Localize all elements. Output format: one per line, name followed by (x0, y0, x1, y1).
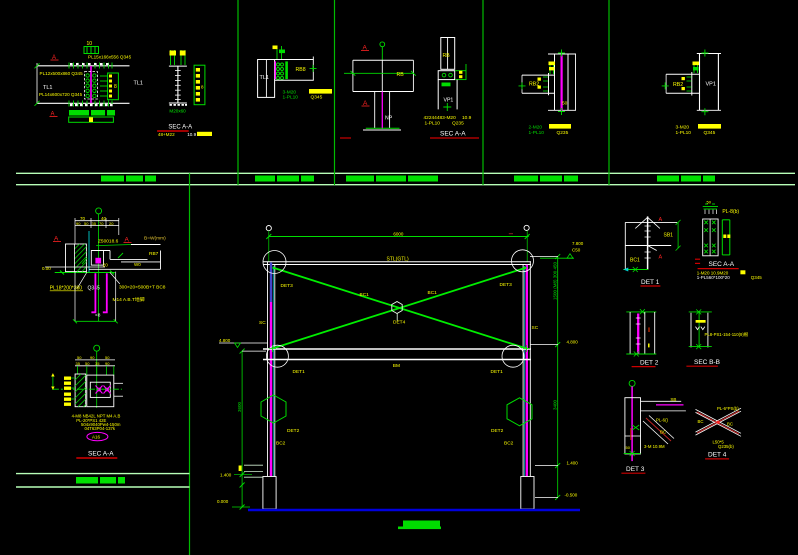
svg-text:C50: C50 (572, 248, 581, 253)
svg-text:4.800: 4.800 (567, 340, 579, 345)
svg-text:VP1: VP1 (706, 82, 716, 88)
svg-text:20: 20 (109, 221, 114, 226)
svg-text:DET2: DET2 (287, 428, 300, 434)
svg-text:DET2: DET2 (491, 428, 504, 434)
svg-text:2-M20: 2-M20 (529, 124, 543, 130)
svg-text:Z50018.6: Z50018.6 (98, 239, 119, 245)
svg-text:35: 35 (92, 221, 97, 226)
svg-text:3400: 3400 (552, 399, 557, 410)
svg-text:SEC A-A: SEC A-A (88, 451, 114, 458)
svg-text:Q345: Q345 (704, 130, 716, 136)
svg-text:A: A (659, 217, 663, 223)
svg-text:BC2: BC2 (504, 440, 514, 446)
svg-text:RB2: RB2 (529, 82, 539, 88)
svg-text:50: 50 (562, 101, 568, 107)
svg-text:3-M20: 3-M20 (676, 124, 690, 130)
svg-text:RB: RB (397, 72, 405, 78)
svg-text:300×20×500B+T BC8: 300×20×500B+T BC8 (119, 284, 166, 290)
svg-text:RB8: RB8 (296, 67, 306, 73)
svg-text:BC: BC (698, 419, 704, 424)
svg-text:RB7: RB7 (149, 251, 159, 257)
svg-text:A16: A16 (92, 435, 101, 440)
svg-text:Q235: Q235 (452, 121, 464, 127)
svg-text:1-PL10: 1-PL10 (425, 121, 441, 127)
svg-text:TL1: TL1 (260, 75, 269, 81)
svg-text:BC1: BC1 (360, 292, 370, 298)
svg-text:DET 1: DET 1 (641, 279, 660, 286)
svg-text:RB: RB (443, 53, 451, 59)
svg-text:PL-6*PS(b): PL-6*PS(b) (717, 406, 739, 411)
svg-text:Q345: Q345 (88, 285, 100, 291)
svg-text:1-PL10: 1-PL10 (676, 130, 692, 136)
svg-text:VP1: VP1 (444, 98, 454, 104)
svg-text:DET1: DET1 (491, 369, 504, 375)
svg-text:PL14x600x720 Q345: PL14x600x720 Q345 (39, 92, 83, 97)
svg-text:50: 50 (77, 355, 82, 360)
svg-text:1.400: 1.400 (220, 472, 232, 477)
svg-text:3600: 3600 (237, 401, 242, 412)
svg-text:BC2: BC2 (276, 440, 286, 446)
svg-text:50: 50 (105, 355, 110, 360)
svg-text:TL1: TL1 (43, 85, 52, 91)
svg-text:SC: SC (532, 325, 539, 331)
svg-text:04T63P04-137k: 04T63P04-137k (85, 426, 116, 431)
svg-text:Q345: Q345 (311, 95, 323, 101)
svg-text:SEC A-A: SEC A-A (709, 261, 735, 268)
svg-text:M14 A.B.T地脚: M14 A.B.T地脚 (113, 296, 145, 303)
svg-text:Q235: Q235 (557, 130, 569, 136)
svg-text:DET 4: DET 4 (708, 452, 727, 459)
svg-text:SB1: SB1 (664, 233, 674, 239)
svg-text:SB: SB (670, 397, 676, 402)
svg-text:10.9: 10.9 (187, 132, 196, 137)
svg-text:0.00: 0.00 (42, 266, 51, 271)
svg-text:6000: 6000 (393, 232, 404, 237)
svg-text:DET 3: DET 3 (626, 466, 645, 473)
svg-text:1-PL10: 1-PL10 (529, 130, 545, 136)
svg-text:PL-8(b): PL-8(b) (722, 209, 739, 215)
svg-text:DET 2: DET 2 (640, 360, 659, 367)
svg-text:BC1: BC1 (630, 258, 640, 264)
svg-text:DET1: DET1 (293, 369, 306, 375)
svg-text:PL18*200*360: PL18*200*360 (50, 285, 82, 291)
svg-text:1.400: 1.400 (567, 461, 579, 466)
svg-text:50: 50 (85, 361, 90, 366)
svg-text:DET4: DET4 (393, 320, 406, 326)
svg-text:10.9: 10.9 (462, 115, 472, 121)
svg-text:70: 70 (99, 221, 104, 226)
svg-text:50: 50 (626, 445, 631, 450)
svg-text:DET3: DET3 (281, 283, 294, 289)
svg-text:1-PL10: 1-PL10 (283, 95, 299, 101)
svg-text:SEC A-A: SEC A-A (440, 131, 466, 138)
svg-text:BC: BC (660, 430, 667, 435)
svg-text:90: 90 (105, 361, 110, 366)
svg-text:PL8-PS1-154-110(9)根: PL8-PS1-154-110(9)根 (705, 331, 749, 338)
svg-text:SC: SC (259, 320, 266, 326)
svg-text:RB2: RB2 (673, 82, 683, 88)
svg-text:NP: NP (385, 116, 393, 122)
svg-text:TL1: TL1 (134, 81, 143, 87)
svg-text:A: A (659, 255, 663, 261)
svg-text:90: 90 (76, 221, 81, 226)
svg-text:35: 35 (76, 361, 81, 366)
svg-text:7.800: 7.800 (572, 241, 584, 246)
svg-text:PL12x500x860 Q345: PL12x500x860 Q345 (40, 71, 84, 76)
svg-text:SEC B-B: SEC B-B (694, 359, 720, 366)
svg-text:1-PL560*100*20: 1-PL560*100*20 (697, 275, 731, 280)
svg-text:50: 50 (84, 221, 89, 226)
svg-text:PL-6(): PL-6() (656, 418, 669, 423)
svg-text:42244483-M20: 42244483-M20 (424, 115, 457, 121)
svg-text:PL15x166x556 Q345: PL15x166x556 Q345 (88, 55, 132, 60)
svg-text:-0.500: -0.500 (565, 493, 578, 498)
svg-text:BC: BC (727, 422, 733, 427)
svg-text:BC1: BC1 (428, 290, 438, 296)
svg-text:B=W(mm): B=W(mm) (144, 236, 166, 242)
svg-text:90: 90 (90, 355, 95, 360)
svg-text:Q345: Q345 (751, 275, 763, 280)
svg-text:4.800: 4.800 (219, 338, 231, 343)
svg-text:Q235(b): Q235(b) (718, 444, 734, 449)
svg-text:0.000: 0.000 (217, 499, 229, 504)
svg-text:48+M22: 48+M22 (158, 132, 175, 137)
svg-text:SEC A-A: SEC A-A (168, 125, 192, 131)
svg-text:M20x60: M20x60 (169, 109, 186, 114)
svg-text:BM: BM (393, 363, 400, 369)
svg-text:<8: <8 (95, 313, 101, 319)
svg-text:8: 8 (114, 84, 117, 90)
svg-text:DET3: DET3 (500, 282, 513, 288)
svg-text:1500 (M8) 300 450: 1500 (M8) 300 450 (552, 261, 557, 300)
svg-text:35: 35 (95, 361, 100, 366)
svg-text:W0: W0 (134, 262, 141, 267)
svg-text:3-M 10.9M: 3-M 10.9M (644, 444, 665, 449)
